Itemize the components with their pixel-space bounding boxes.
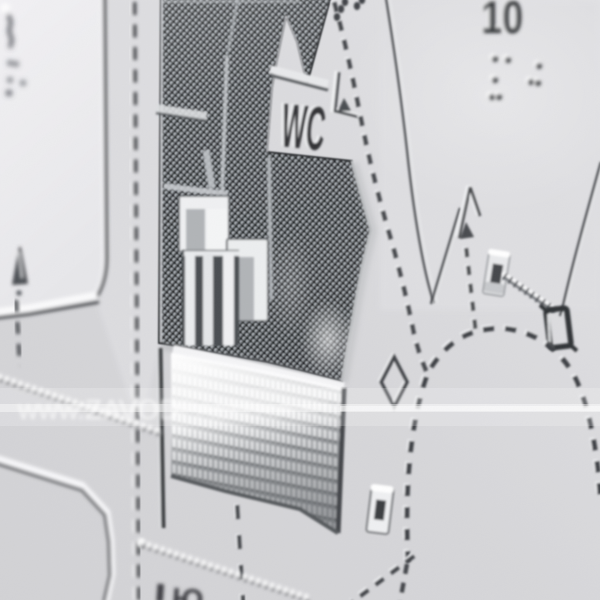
- svg-text:www.ZAVOD: www.ZAVOD: [17, 394, 179, 425]
